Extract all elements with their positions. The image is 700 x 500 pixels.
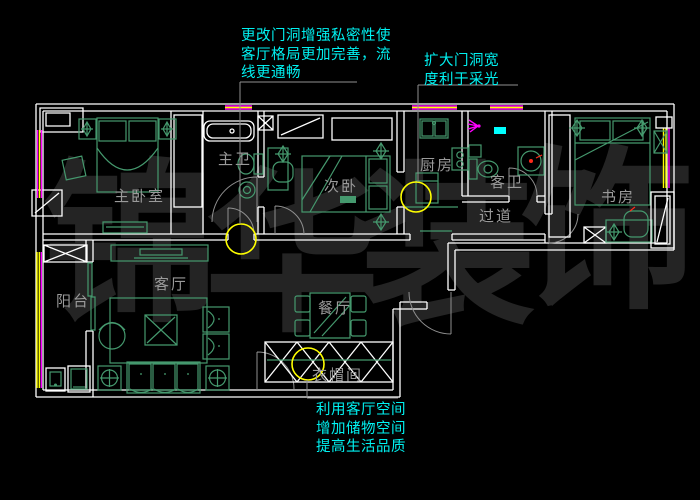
dresser [103,222,147,233]
annotation-line: 提高生活品质 [316,438,406,457]
storage-hatches [44,115,606,382]
highlight-master-door [226,224,256,254]
room-label-living-room: 客厅 [154,273,188,294]
chair [273,162,293,182]
balcony-fixtures [46,366,90,392]
door-arcs [212,168,578,390]
room-label-study: 书房 [601,186,635,207]
annotation-top: 更改门洞增强私密性使 客厅格局更加完善，流 线更通畅 [241,27,391,83]
tv-cabinet [111,245,208,261]
annotation-line: 度利于采光 [424,71,499,90]
ac-unit [651,192,674,248]
master-wardrobe [174,115,202,207]
room-label-cloakroom: 衣帽间 [312,364,363,385]
chair [351,320,366,336]
windows [37,106,669,388]
room-label-guest-bath: 客卫 [490,171,524,192]
annotation-line: 扩大门洞宽 [424,52,499,71]
entry-mirror [278,115,323,138]
room-label-dining-room: 餐厅 [318,297,352,318]
cad-floorplan-canvas: 锦 华 装 饰 [0,0,700,500]
bed [97,118,158,192]
sink [239,182,255,198]
room-label-second-bedroom: 次卧 [324,175,358,196]
bath-shelf [258,116,273,130]
balcony-cabinet [44,245,87,262]
basin [68,366,90,392]
annotation-line: 线更通畅 [241,64,391,83]
washer [46,368,65,391]
pouf [62,156,86,180]
annotation-line: 更改门洞增强私密性使 [241,27,391,46]
room-label-master-bath: 主卫 [218,148,252,169]
chair [295,296,310,312]
room-label-corridor: 过道 [479,205,513,226]
annotation-line: 增加储物空间 [316,420,406,439]
annotation-bottom: 利用客厅空间 增加储物空间 提高生活品质 [316,401,406,457]
annotation-right: 扩大门洞宽 度利于采光 [424,52,499,89]
sink [469,145,481,157]
room-label-balcony: 阳台 [56,290,90,311]
annotation-line: 利用客厅空间 [316,401,406,420]
chair [624,211,648,237]
study-furniture [569,117,674,248]
side-table [98,366,121,390]
room-label-master-bedroom: 主卧室 [114,185,165,206]
vent-block [494,127,506,134]
annotation-line: 客厅格局更加完善，流 [241,46,391,65]
shower-head-icon [468,120,481,132]
master-bedroom-furniture [62,118,176,233]
round-chair [99,323,125,350]
living-room-furniture [88,231,452,393]
cabinet [654,131,667,153]
study-shelf [584,227,606,243]
stove [452,148,468,170]
rug [340,196,356,203]
room-label-kitchen: 厨房 [420,154,454,175]
kitchen-sink [420,119,448,138]
coffee-table [145,315,177,345]
walls [32,104,674,397]
sofa [127,362,200,393]
chair [351,296,366,312]
chair [295,320,310,336]
side-table [206,366,229,390]
rug [110,298,207,363]
shoe-cabinet [332,118,392,140]
